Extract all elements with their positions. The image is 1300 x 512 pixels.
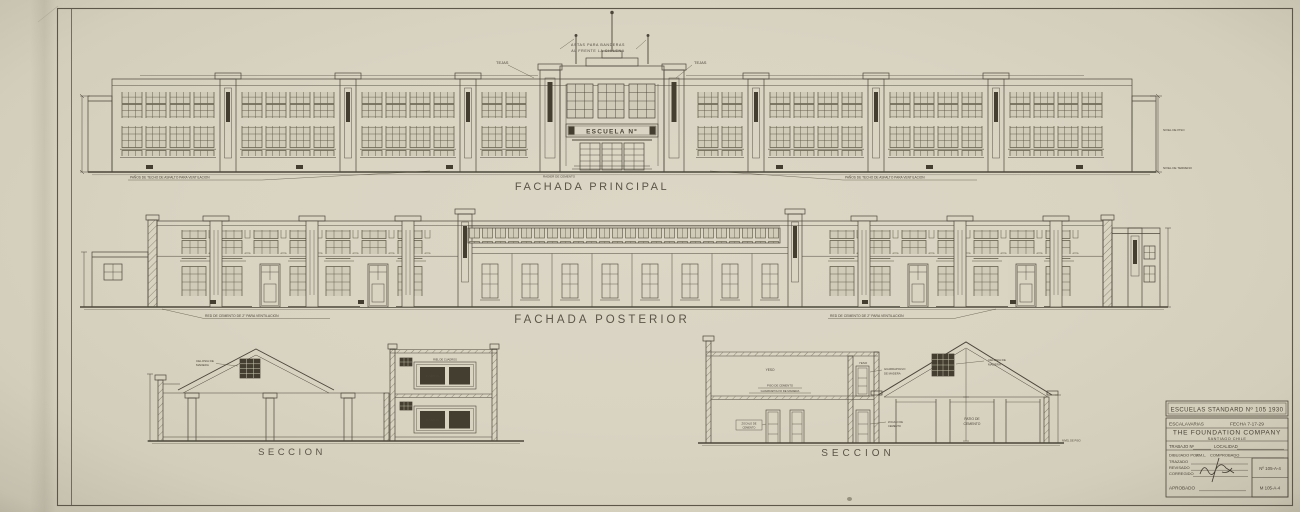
titleblock-escala-value: VARIAS [1188,422,1204,427]
patio-note-2: CEMENTO [964,422,981,426]
seccion-right-annotations: YESO YESO PISO DE CEMENTO GUARDAPOLVO DE… [742,358,1081,443]
fachada-posterior-drawing [80,209,1171,310]
posterior-left-end [92,215,159,307]
titleblock-dibujado: DIBUJADO POR [1169,453,1199,458]
pavilion-entrance [572,140,652,170]
fachada-principal-drawing: ESCUELA Nº [80,11,1162,175]
zocalo-note-2a: ZOCALO DE [888,420,903,424]
guardapolvo-note-1: GUARDAPOLVO DE MADERA [761,389,800,393]
piso-cemento-note: PISO DE CEMENTO [767,384,794,388]
titleblock-revisado: REVISADO [1169,465,1190,470]
titleblock-sheet-no-2: M 105-A-4 [1260,486,1281,491]
seccion-right-upper-door [856,366,869,396]
nivel-terreno-note: NIVEL DE TERRENO [1163,166,1193,170]
titleblock-sheet-no-1: Nº 105-A-4 [1259,466,1281,471]
pizarron-upper: PIZARRON [426,374,440,378]
label-fachada-posterior: FACHADA POSTERIOR [514,314,690,326]
vent-note-left: RED DE CEMENTO DE 2" PARA VENTILACION [205,314,279,318]
posterior-parapet-caps [203,216,1069,221]
yeso-note-2: YESO [859,361,868,365]
flag-masts [575,11,649,64]
seccion-left-gable-vent [240,359,260,378]
escuela-sign-text: ESCUELA Nº [586,129,638,136]
celosia-note-1b: MADERA [196,363,209,367]
guardapolvo-note-2a: GUARDAPOLVO [884,367,906,371]
label-fachada-principal: FACHADA PRINCIPAL [515,181,669,193]
seccion-left-annotations: CELOSIA DE MADERA RIEL DE CUADROS PIZARR… [196,358,457,423]
pizarron-lower: PIZARRON [426,418,440,422]
principal-central-pavilion: ESCUELA Nº [538,11,686,172]
posterior-right-end [1101,215,1160,307]
posterior-base-vents [210,300,1016,304]
principal-parapet-caps [215,73,1009,79]
titleblock-dibujado-value: J.M.L. [1196,454,1206,458]
celosia-note-2b: MADERA [988,363,1001,367]
tejas-label-left: TEJAS [496,60,509,65]
label-seccion-left: SECCION [258,447,326,458]
label-seccion-right: SECCION [821,448,895,459]
title-block: ESCUELAS STANDARD Nº 105 1930 ESCALA VAR… [1166,401,1288,497]
celosia-note-2a: CELOSIA DE [988,358,1006,362]
titleblock-trabajo: TRABAJO Nº [1169,444,1194,449]
titleblock-localidad: LOCALIDAD [1214,444,1238,449]
titleblock-fecha: FECHA 7-17-29 [1230,422,1264,428]
zocalo-note-1a: ZOCALO DE [742,422,757,426]
titleblock-city: SANTIAGO CHILE [1208,437,1247,441]
guardapolvo-note-2b: DE MADERA [884,372,901,376]
titleblock-aprobado: APROBADO [1169,486,1195,491]
patio-note-1: PATIO DE [964,417,980,421]
seccion-left-piers [163,393,384,441]
flag-note-line2: AL FRENTE LA CHILENA [571,49,624,53]
yeso-note-1: YESO [766,368,775,372]
zocalo-note-1b: CEMENTO [743,426,756,430]
roof-note-left: PAÑOS DE TECHO DE ASFALTO PARA VENTILACI… [130,175,210,180]
titleblock-escala-label: ESCALA [1169,422,1189,428]
posterior-center-windows [480,264,780,300]
principal-base-vents [146,165,1083,169]
posterior-center-section [455,209,805,307]
nivel-piso-note-2: NIVEL DE PISO [1062,439,1081,443]
flag-note-line1: ASTAS PARA BANDERAS [571,43,625,47]
titleblock-title: ESCUELAS STANDARD Nº 105 1930 [1171,407,1284,414]
posterior-doors [252,258,1044,307]
roof-note-right: PAÑOS DE TECHO DE ASFALTO PARA VENTILACI… [845,175,925,180]
nivel-piso-note: NIVEL DE PISO [1163,128,1185,132]
titleblock-corregido: CORREGIDO [1169,471,1194,476]
titleblock-company: THE FOUNDATION COMPANY [1173,430,1281,437]
blueprint-drawing: ESCUELA Nº ASTAS PARA BANDERAS AL FRENTE… [0,0,1300,512]
titleblock-trazado: TRAZADO [1169,459,1188,464]
radier-note: RADIER DE CEMENTO [543,175,576,179]
escuela-sign: ESCUELA Nº [566,124,658,137]
titleblock-comprobado: COMPROBADO [1210,453,1239,458]
zocalo-note-2b: CEMENTO [888,424,901,428]
riel-note: RIEL DE CUADROS [433,358,457,362]
vent-note-right: RED DE CEMENTO DE 2" PARA VENTILACION [830,314,904,318]
tejas-label-right: TEJAS [694,60,707,65]
